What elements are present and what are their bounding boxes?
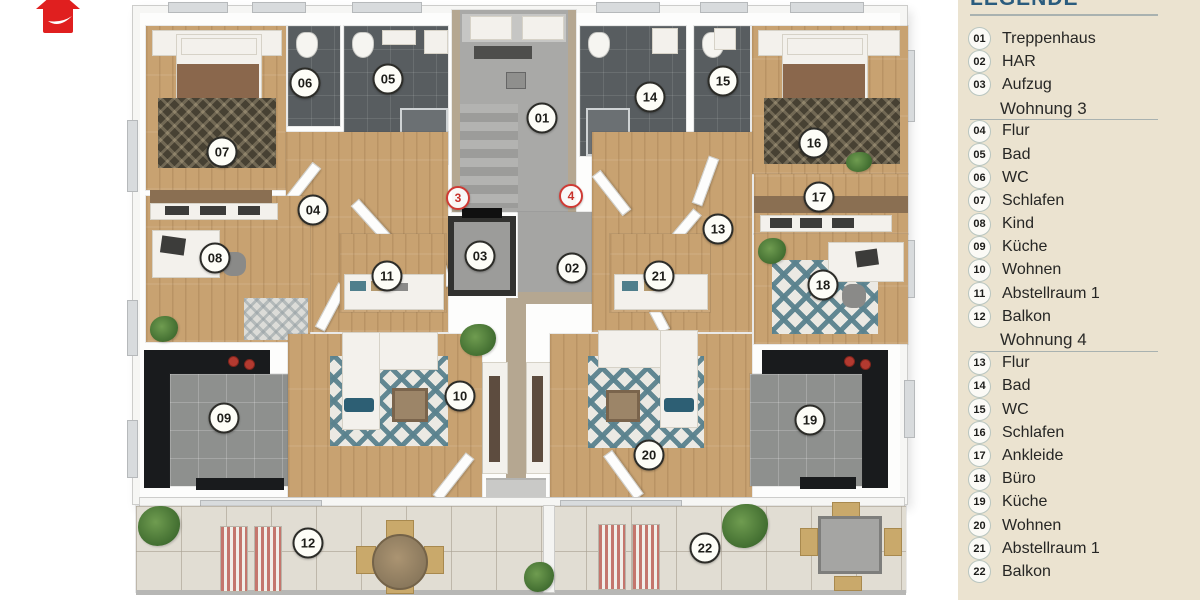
legend-item-label: WC — [1002, 169, 1029, 187]
legend-item-label: Wohnen — [1002, 517, 1061, 535]
legend-title-divider — [970, 14, 1158, 16]
kitchen-counter — [144, 350, 170, 488]
patio-chair — [800, 528, 818, 556]
legend-panel: LEGENDE 01 Treppenhaus 02 HAR 03 Aufzug … — [958, 0, 1200, 600]
room-marker-20: 20 — [634, 440, 665, 471]
legend-item-label: Aufzug — [1002, 76, 1052, 94]
legend-item-12: 12 Balkon — [962, 305, 1198, 328]
round-patio-table — [372, 534, 428, 590]
legend-item-03: 03 Aufzug — [962, 73, 1198, 96]
legend-item-04: 04 Flur — [962, 120, 1198, 143]
legend-item-number: 04 — [968, 120, 991, 143]
stair-box — [506, 72, 526, 89]
legend-item-label: Küche — [1002, 493, 1047, 511]
toilet — [296, 32, 318, 58]
legend-item-number: 19 — [968, 491, 991, 514]
legend-item-22: 22 Balkon — [962, 560, 1198, 583]
bed-pillows — [181, 38, 257, 55]
legend-item-label: Schlafen — [1002, 192, 1064, 210]
legend-item-label: Bad — [1002, 146, 1030, 164]
legend-item-17: 17 Ankleide — [962, 444, 1198, 467]
room-balkon-12 — [136, 506, 906, 592]
room-marker-06: 06 — [290, 68, 321, 99]
patio-chair — [834, 576, 862, 591]
room-marker-10: 10 — [445, 381, 476, 412]
room-marker-04: 04 — [298, 195, 329, 226]
legend-item-13: 13 Flur — [962, 352, 1198, 375]
room-marker-11: 11 — [372, 261, 403, 292]
legend-list: 01 Treppenhaus 02 HAR 03 Aufzug Wohnung … — [962, 27, 1198, 584]
legend-item-number: 13 — [968, 352, 991, 375]
drawer-unit — [770, 218, 792, 228]
lounge-chair — [254, 526, 282, 592]
tray — [238, 206, 260, 215]
legend-item-05: 05 Bad — [962, 143, 1198, 166]
drawer-unit — [800, 218, 822, 228]
legend-item-07: 07 Schlafen — [962, 189, 1198, 212]
desk-chair — [842, 284, 866, 308]
room-marker-12: 12 — [293, 528, 324, 559]
room-marker-19: 19 — [795, 405, 826, 436]
cooktop-burner — [228, 356, 239, 367]
legend-item-label: Treppenhaus — [1002, 30, 1096, 48]
room-marker-17: 17 — [804, 182, 835, 213]
unit-entrance-marker-3: 3 — [446, 186, 470, 210]
tv-panel — [532, 376, 543, 462]
legend-item-10: 10 Wohnen — [962, 259, 1198, 282]
legend-item-number: 09 — [968, 236, 991, 259]
legend-item-21: 21 Abstellraum 1 — [962, 537, 1198, 560]
legend-item-label: Büro — [1002, 470, 1036, 488]
balcony-railing — [136, 590, 906, 595]
room-marker-13: 13 — [703, 214, 734, 245]
room-marker-14: 14 — [635, 82, 666, 113]
legend-item-number: 05 — [968, 143, 991, 166]
sofa-pillows — [344, 398, 374, 412]
legend-item-label: Ankleide — [1002, 447, 1063, 465]
legend-item-label: Kind — [1002, 215, 1034, 233]
bath-cabinet — [424, 30, 448, 54]
legend-item-18: 18 Büro — [962, 468, 1198, 491]
sofa — [660, 330, 698, 428]
sofa-pillows — [664, 398, 694, 412]
window — [127, 420, 138, 478]
storage-box — [350, 281, 366, 291]
patio-chair — [884, 528, 902, 556]
stairwell-wall — [568, 10, 576, 212]
toilet — [352, 32, 374, 58]
legend-item-label: HAR — [1002, 53, 1036, 71]
room-marker-22: 22 — [690, 533, 721, 564]
room-marker-05: 05 — [373, 64, 404, 95]
legend-item-number: 01 — [968, 27, 991, 50]
laptop — [855, 249, 879, 268]
legend-item-number: 11 — [968, 282, 991, 305]
room-marker-03: 03 — [465, 241, 496, 272]
legend-item-number: 06 — [968, 166, 991, 189]
window — [127, 120, 138, 192]
floor-plan: 01 02 03 04 05 06 07 08 09 10 11 12 13 1… — [0, 0, 958, 600]
window — [596, 2, 660, 13]
legend-item-number: 22 — [968, 560, 991, 583]
legend-item-06: 06 WC — [962, 166, 1198, 189]
legend-item-label: Abstellraum 1 — [1002, 540, 1100, 558]
legend-section-header-wohnung-4: Wohnung 4 — [970, 328, 1158, 351]
doormat — [470, 16, 512, 40]
toilet — [588, 32, 610, 58]
legend-item-01: 01 Treppenhaus — [962, 27, 1198, 50]
legend-item-label: Bad — [1002, 377, 1030, 395]
sofa — [342, 332, 380, 430]
sink — [382, 30, 416, 45]
room-marker-16: 16 — [799, 128, 830, 159]
window — [168, 2, 228, 13]
legend-item-label: Schlafen — [1002, 424, 1064, 442]
legend-item-number: 02 — [968, 50, 991, 73]
legend-item-label: Wohnen — [1002, 261, 1061, 279]
legend-item-number: 03 — [968, 73, 991, 96]
bench — [474, 46, 532, 59]
legend-item-number: 12 — [968, 305, 991, 328]
legend-item-20: 20 Wohnen — [962, 514, 1198, 537]
laptop — [160, 235, 186, 255]
lounge-chair — [220, 526, 248, 592]
coffee-table — [606, 390, 640, 422]
unit-entrance-marker-4: 4 — [559, 184, 583, 208]
legend-item-11: 11 Abstellraum 1 — [962, 282, 1198, 305]
legend-item-label: Balkon — [1002, 563, 1051, 581]
legend-item-number: 21 — [968, 537, 991, 560]
room-marker-15: 15 — [708, 66, 739, 97]
lounge-chair — [598, 524, 626, 590]
room-marker-01: 01 — [527, 103, 558, 134]
storage-box — [622, 281, 638, 291]
legend-item-number: 16 — [968, 421, 991, 444]
legend-item-14: 14 Bad — [962, 375, 1198, 398]
bath-cabinet — [652, 28, 678, 54]
room-marker-02: 02 — [557, 253, 588, 284]
room-marker-18: 18 — [808, 270, 839, 301]
legend-item-label: WC — [1002, 401, 1029, 419]
bath-cabinet — [714, 28, 736, 50]
legend-item-number: 14 — [968, 375, 991, 398]
bed-pillows — [787, 38, 863, 55]
square-patio-table — [818, 516, 882, 574]
legend-section-header-wohnung-3: Wohnung 3 — [970, 97, 1158, 120]
legend-item-09: 09 Küche — [962, 236, 1198, 259]
room-marker-07: 07 — [207, 137, 238, 168]
center-spine-wall — [506, 298, 526, 504]
drawer-unit — [832, 218, 854, 228]
floorplan-page: 01 02 03 04 05 06 07 08 09 10 11 12 13 1… — [0, 0, 1200, 600]
legend-item-number: 17 — [968, 444, 991, 467]
tv-panel — [489, 376, 500, 462]
window — [700, 2, 748, 13]
legend-item-label: Balkon — [1002, 308, 1051, 326]
legend-item-19: 19 Küche — [962, 491, 1198, 514]
room-marker-21: 21 — [644, 261, 675, 292]
doormat — [522, 16, 564, 40]
stairwell-wall — [452, 10, 460, 212]
window — [352, 2, 422, 13]
legend-item-label: Flur — [1002, 122, 1030, 140]
cooktop-burner — [844, 356, 855, 367]
cooktop-burner — [244, 359, 255, 370]
tray — [165, 206, 189, 215]
legend-item-number: 18 — [968, 468, 991, 491]
legend-item-label: Flur — [1002, 354, 1030, 372]
bedroom-rug — [764, 98, 900, 164]
legend-item-number: 20 — [968, 514, 991, 537]
window — [904, 380, 915, 438]
window — [127, 300, 138, 356]
legend-item-label: Küche — [1002, 238, 1047, 256]
room-marker-09: 09 — [209, 403, 240, 434]
legend-item-16: 16 Schlafen — [962, 421, 1198, 444]
legend-item-number: 08 — [968, 213, 991, 236]
sideboard — [150, 190, 272, 203]
tray — [200, 206, 226, 215]
legend-title: LEGENDE — [970, 0, 1079, 11]
window — [790, 2, 864, 13]
legend-item-number: 15 — [968, 398, 991, 421]
lounge-chair — [632, 524, 660, 590]
elevator-door — [462, 208, 502, 218]
kitchen-island — [196, 478, 284, 490]
kitchen-counter — [862, 350, 888, 488]
legend-item-number: 07 — [968, 189, 991, 212]
legend-item-label: Abstellraum 1 — [1002, 285, 1100, 303]
cooktop-burner — [860, 359, 871, 370]
legend-item-02: 02 HAR — [962, 50, 1198, 73]
kitchen-island — [800, 477, 856, 489]
legend-item-number: 10 — [968, 259, 991, 282]
legend-item-08: 08 Kind — [962, 213, 1198, 236]
room-marker-08: 08 — [200, 243, 231, 274]
legend-item-15: 15 WC — [962, 398, 1198, 421]
coffee-table — [392, 388, 428, 422]
window — [252, 2, 306, 13]
